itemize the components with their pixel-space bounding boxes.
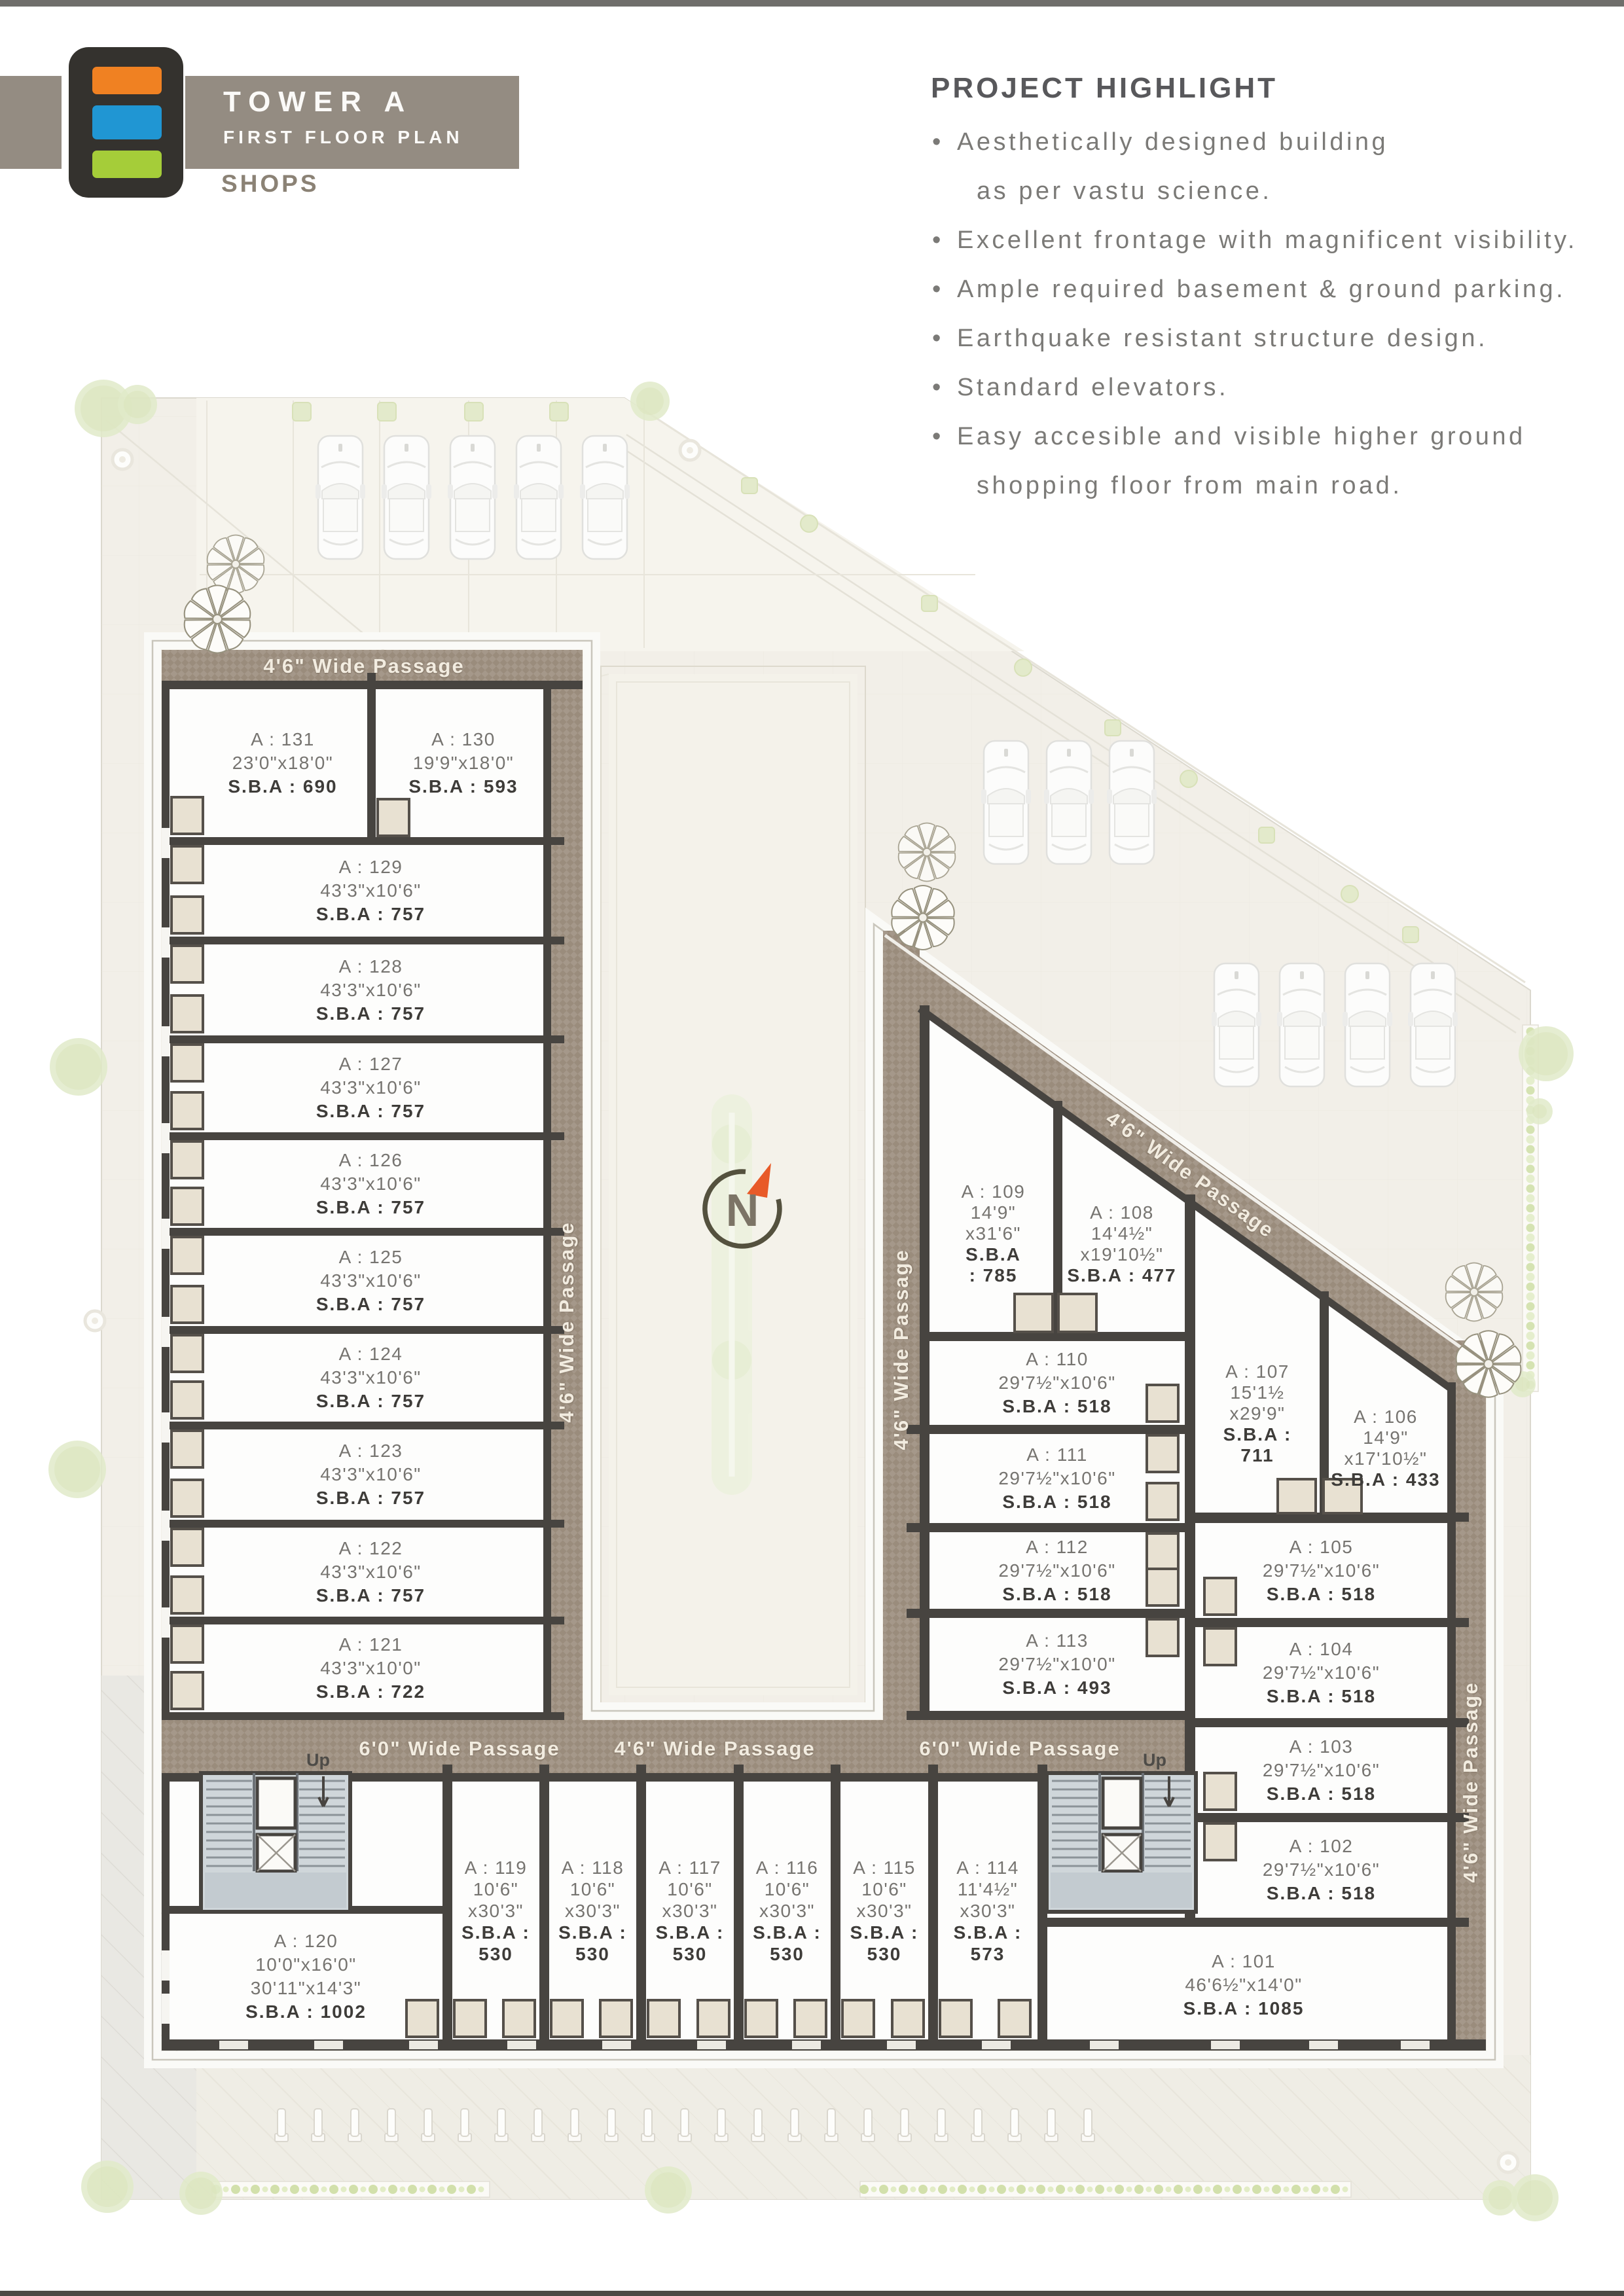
svg-text:N: N: [726, 1185, 759, 1236]
